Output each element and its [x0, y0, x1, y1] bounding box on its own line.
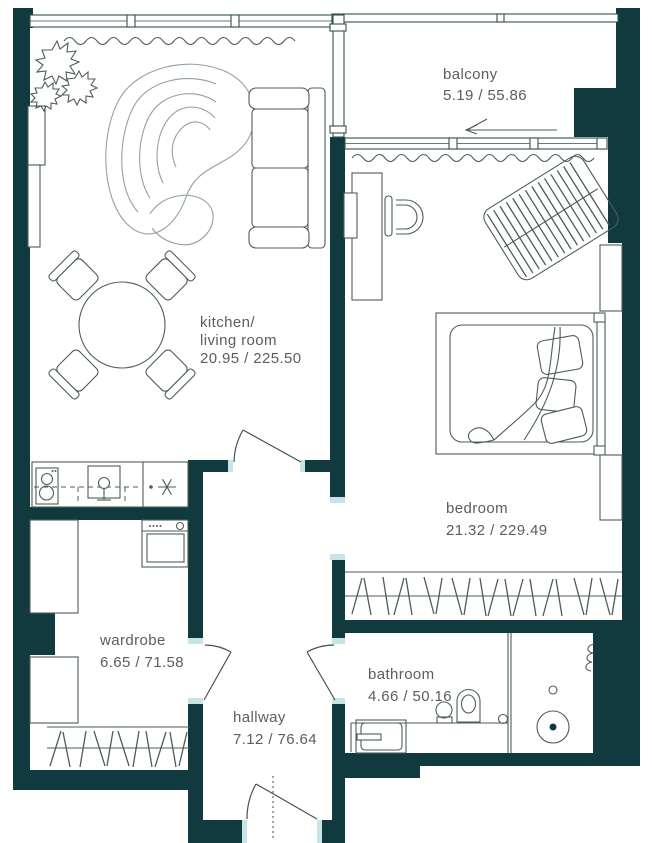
shower-drain-symbol [537, 686, 569, 743]
bedroom-label: bedroom [446, 500, 508, 517]
desk-chair-symbol [385, 196, 423, 236]
clothes-rail-bedroom [345, 572, 622, 616]
bathroom-area: 4.66 / 50.16 [368, 688, 452, 705]
rug-symbol [106, 64, 255, 244]
desk-symbol [344, 173, 382, 300]
bathtub-symbol [356, 720, 406, 753]
clothes-rail-wardrobe [47, 727, 190, 767]
floor-plan: balcony 5.19 / 55.86 kitchen/ living roo… [0, 0, 652, 843]
hallway-area: 7.12 / 76.64 [233, 731, 317, 748]
door-jambs [188, 460, 345, 843]
wardrobe-door-swing [204, 645, 231, 700]
balcony-slide-arrow [466, 119, 557, 134]
sofa-symbol [249, 88, 325, 248]
floor-plan-page: balcony 5.19 / 55.86 kitchen/ living roo… [0, 0, 652, 843]
entry-door-swing [247, 776, 317, 841]
balcony-area: 5.19 / 55.86 [443, 87, 527, 104]
bedroom-area: 21.32 / 229.49 [446, 522, 548, 539]
washbasin-symbol [436, 702, 452, 723]
hallway-label: hallway [233, 709, 286, 726]
wardrobe-area: 6.65 / 71.58 [100, 654, 184, 671]
dining-table-symbol [79, 282, 165, 368]
kitchen-sink-symbol [88, 466, 120, 500]
kitchen-living-area: 20.95 / 225.50 [200, 350, 302, 367]
wardrobe-label: wardrobe [99, 632, 166, 649]
balcony-glass-partition [330, 15, 346, 137]
towel-radiator-symbol [586, 644, 594, 671]
toilet-symbol [457, 690, 480, 723]
living-room-window [30, 15, 332, 27]
curtain-living [64, 38, 295, 45]
stove-symbol [36, 468, 58, 504]
bed-symbol [436, 313, 605, 455]
headboard [597, 318, 605, 449]
bathroom-label: bathroom [368, 666, 435, 683]
ceiling-light-symbol [149, 479, 176, 495]
kitchen-counter-symbol [32, 462, 188, 507]
wall-niche-radiator [28, 106, 45, 247]
bathroom-door-swing [307, 645, 335, 700]
balcony-label: balcony [443, 66, 498, 83]
washing-machine-symbol [142, 520, 188, 567]
pillows [535, 335, 588, 445]
kitchen-living-label-1: kitchen/ [200, 314, 255, 331]
curtain-bedroom [352, 155, 594, 162]
doors [204, 430, 335, 841]
kitchen-living-label-2: living room [200, 332, 277, 349]
toilet-brush [499, 715, 508, 724]
kitchen-door-swing [234, 430, 301, 462]
balcony-railing [332, 14, 618, 22]
balcony-sliding-window [345, 138, 607, 149]
plant-symbol [31, 41, 97, 111]
